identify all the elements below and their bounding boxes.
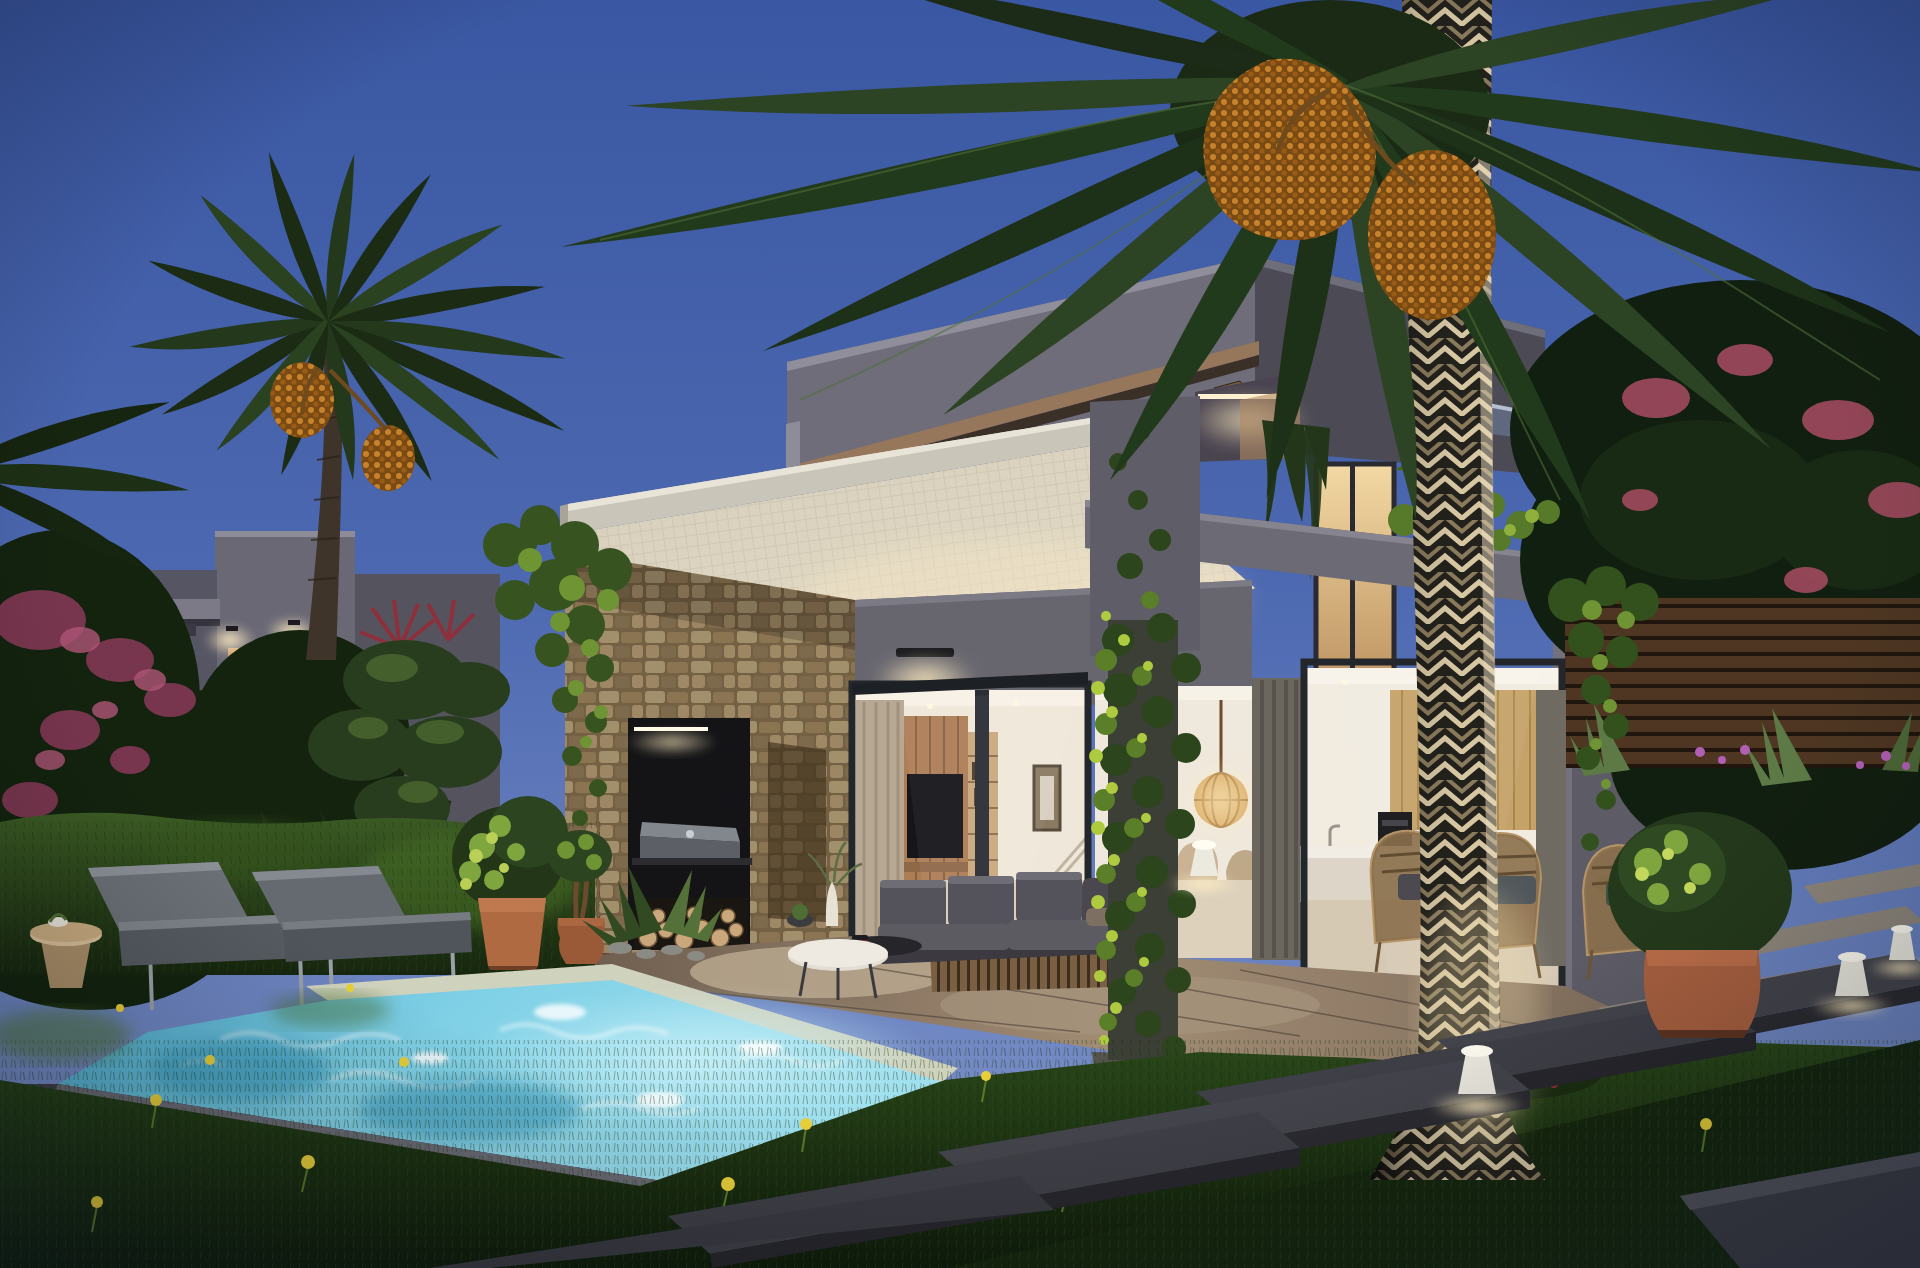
- vignette: [0, 0, 1920, 1268]
- villa-dusk-rendering: [0, 0, 1920, 1268]
